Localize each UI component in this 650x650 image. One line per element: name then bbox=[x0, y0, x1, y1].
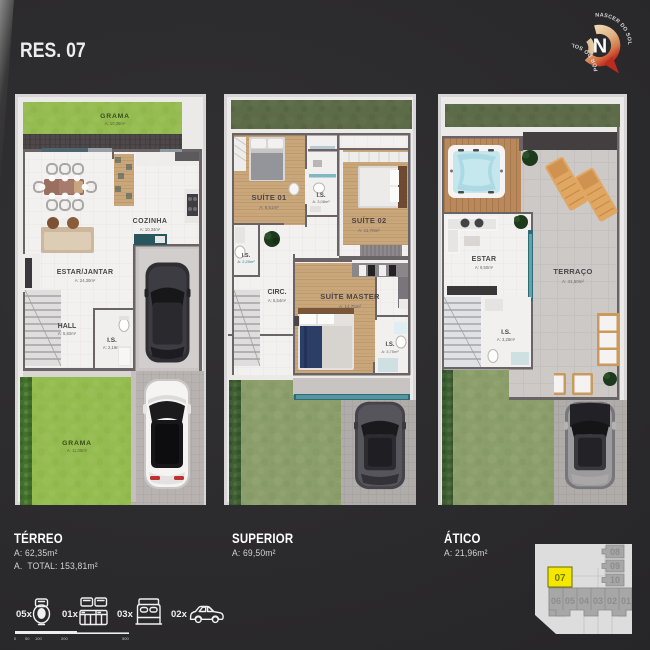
svg-text:CIRC.: CIRC. bbox=[267, 289, 286, 296]
svg-text:A: 41,50m²: A: 41,50m² bbox=[562, 279, 585, 284]
svg-text:06: 06 bbox=[551, 596, 561, 606]
svg-text:01x: 01x bbox=[62, 609, 79, 620]
svg-text:07: 07 bbox=[554, 573, 566, 584]
svg-text:0: 0 bbox=[14, 636, 17, 641]
svg-text:200: 200 bbox=[61, 636, 68, 641]
svg-text:SUÍTE 02: SUÍTE 02 bbox=[352, 216, 387, 225]
svg-text:A: 11,70m²: A: 11,70m² bbox=[358, 228, 380, 233]
svg-text:N: N bbox=[593, 36, 607, 58]
svg-text:100: 100 bbox=[35, 636, 42, 641]
svg-text:GRAMA: GRAMA bbox=[62, 440, 92, 447]
svg-text:A: 5,54m²: A: 5,54m² bbox=[268, 298, 287, 303]
svg-text:A: 24,30m²: A: 24,30m² bbox=[75, 278, 96, 283]
svg-text:500: 500 bbox=[122, 636, 129, 641]
svg-text:I.S.: I.S. bbox=[501, 329, 511, 336]
svg-text:04: 04 bbox=[579, 596, 589, 606]
svg-text:A: 3,75m²: A: 3,75m² bbox=[381, 349, 399, 354]
svg-text:A: 2,20m²: A: 2,20m² bbox=[237, 259, 255, 264]
svg-text:ESTAR/JANTAR: ESTAR/JANTAR bbox=[57, 269, 114, 276]
svg-text:ESTAR: ESTAR bbox=[472, 256, 497, 263]
svg-text:I.S.: I.S. bbox=[385, 342, 394, 348]
svg-text:02: 02 bbox=[607, 596, 617, 606]
svg-text:GRAMA: GRAMA bbox=[100, 113, 130, 120]
svg-text:A: 8,51m²: A: 8,51m² bbox=[259, 205, 279, 210]
svg-text:A: 3,08m²: A: 3,08m² bbox=[312, 199, 330, 204]
svg-text:A: 11,05m²: A: 11,05m² bbox=[67, 448, 88, 453]
svg-text:10: 10 bbox=[610, 575, 620, 585]
svg-text:05x: 05x bbox=[16, 609, 33, 620]
svg-text:A: 9,50m²: A: 9,50m² bbox=[475, 265, 494, 270]
svg-text:A: 5,82m²: A: 5,82m² bbox=[58, 331, 77, 336]
svg-text:TERRAÇO: TERRAÇO bbox=[553, 267, 592, 276]
svg-text:I.S.: I.S. bbox=[107, 337, 117, 344]
svg-text:A: 3,28m²: A: 3,28m² bbox=[497, 337, 516, 342]
svg-text:COZINHA: COZINHA bbox=[133, 218, 168, 225]
svg-text:09: 09 bbox=[610, 561, 620, 571]
svg-text:SUÍTE MASTER: SUÍTE MASTER bbox=[320, 292, 380, 301]
svg-text:50: 50 bbox=[25, 636, 30, 641]
svg-text:HALL: HALL bbox=[58, 323, 77, 330]
svg-text:A: 10,34m²: A: 10,34m² bbox=[140, 227, 161, 232]
svg-text:01: 01 bbox=[621, 596, 631, 606]
svg-text:A: 10,35m²: A: 10,35m² bbox=[105, 121, 126, 126]
svg-text:SUÍTE 01: SUÍTE 01 bbox=[252, 193, 287, 202]
svg-text:08: 08 bbox=[610, 547, 620, 557]
svg-text:05: 05 bbox=[565, 596, 575, 606]
svg-text:03x: 03x bbox=[117, 609, 134, 620]
svg-text:03: 03 bbox=[593, 596, 603, 606]
svg-text:02x: 02x bbox=[171, 609, 188, 620]
